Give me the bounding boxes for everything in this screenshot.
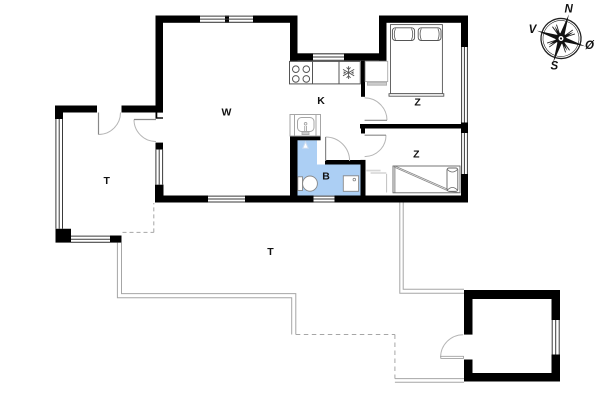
svg-text:B: B bbox=[322, 170, 330, 182]
svg-text:Ø: Ø bbox=[585, 40, 595, 52]
svg-text:K: K bbox=[317, 95, 325, 107]
svg-text:W: W bbox=[221, 106, 231, 118]
svg-text:T: T bbox=[103, 175, 110, 187]
svg-text:N: N bbox=[564, 3, 573, 15]
svg-text:S: S bbox=[550, 61, 558, 73]
svg-text:V: V bbox=[529, 24, 538, 36]
svg-text:Z: Z bbox=[414, 97, 421, 109]
svg-text:T: T bbox=[267, 246, 274, 258]
svg-text:Z: Z bbox=[413, 148, 420, 160]
